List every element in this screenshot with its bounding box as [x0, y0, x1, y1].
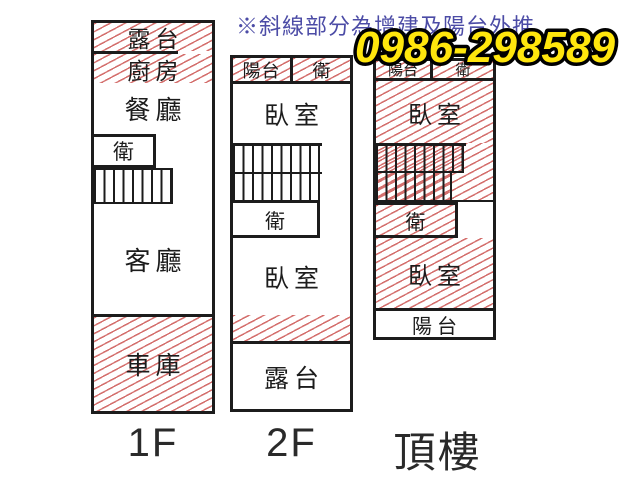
room-bath-mid: 衛	[233, 200, 320, 238]
room-living: 客廳	[94, 204, 212, 314]
room-label-dining: 餐廳	[119, 90, 186, 127]
room-label-bedroom-upper: 臥室	[403, 95, 466, 130]
phone-number: 0986-298589	[351, 22, 623, 72]
room-label-bath-mid: 衛	[260, 205, 290, 234]
room-bath-mid: 衛	[376, 202, 458, 238]
stairs-upper-flight	[233, 146, 320, 172]
room-label-bedroom-lower: 臥室	[403, 256, 466, 291]
phone-number-text: 0986-298589	[355, 23, 616, 72]
floor-caption-roof: 頂樓	[370, 419, 505, 480]
room-bath-top: 衛	[293, 58, 350, 81]
stairs-lower-flight	[376, 173, 452, 200]
room-label-living: 客廳	[119, 241, 186, 278]
room-bedroom-upper: 臥室	[233, 84, 350, 143]
room-bath: 衛	[94, 134, 156, 168]
stairs-lower-flight	[233, 174, 320, 200]
room-label-bath-mid: 衛	[401, 206, 431, 235]
room-terrace: 露台	[94, 23, 212, 51]
stairs	[94, 168, 173, 204]
room-label-bedroom-lower: 臥室	[259, 259, 324, 295]
room-bedroom-lower: 臥室	[376, 238, 493, 308]
floor-plan-roof: 陽台 衛 臥室 衛 臥室 陽台	[373, 58, 496, 340]
room-dining: 餐廳	[94, 83, 212, 134]
room-balcony: 陽台	[233, 58, 290, 81]
room-label-balcony-bottom: 陽台	[407, 310, 462, 339]
room-label-terrace: 露台	[259, 359, 324, 395]
floor-plan-2f: 陽台 衛 臥室 衛 臥室 露台	[230, 55, 353, 412]
balcony-extension-strip	[233, 315, 350, 341]
room-label-garage: 車庫	[120, 346, 185, 382]
room-label-balcony: 陽台	[243, 57, 281, 83]
room-kitchen: 廚房	[94, 54, 212, 83]
room-terrace: 露台	[233, 344, 350, 409]
room-balcony-bottom: 陽台	[376, 311, 493, 337]
floor-caption-2f: 2F	[230, 421, 353, 466]
room-label-bath: 衛	[108, 136, 139, 166]
room-label-bedroom-upper: 臥室	[259, 96, 324, 132]
room-label-bath-top: 衛	[308, 57, 336, 83]
room-bedroom-upper: 臥室	[376, 81, 493, 143]
stairs-upper-flight	[376, 146, 464, 171]
floor-caption-1f: 1F	[91, 421, 215, 466]
room-label-kitchen: 廚房	[123, 52, 184, 86]
floor-plan-1f: 露台 廚房 餐廳 衛 客廳 車庫	[91, 20, 215, 414]
room-bedroom-lower: 臥室	[233, 238, 350, 315]
room-garage: 車庫	[94, 317, 212, 411]
room-label-terrace: 露台	[123, 20, 184, 54]
